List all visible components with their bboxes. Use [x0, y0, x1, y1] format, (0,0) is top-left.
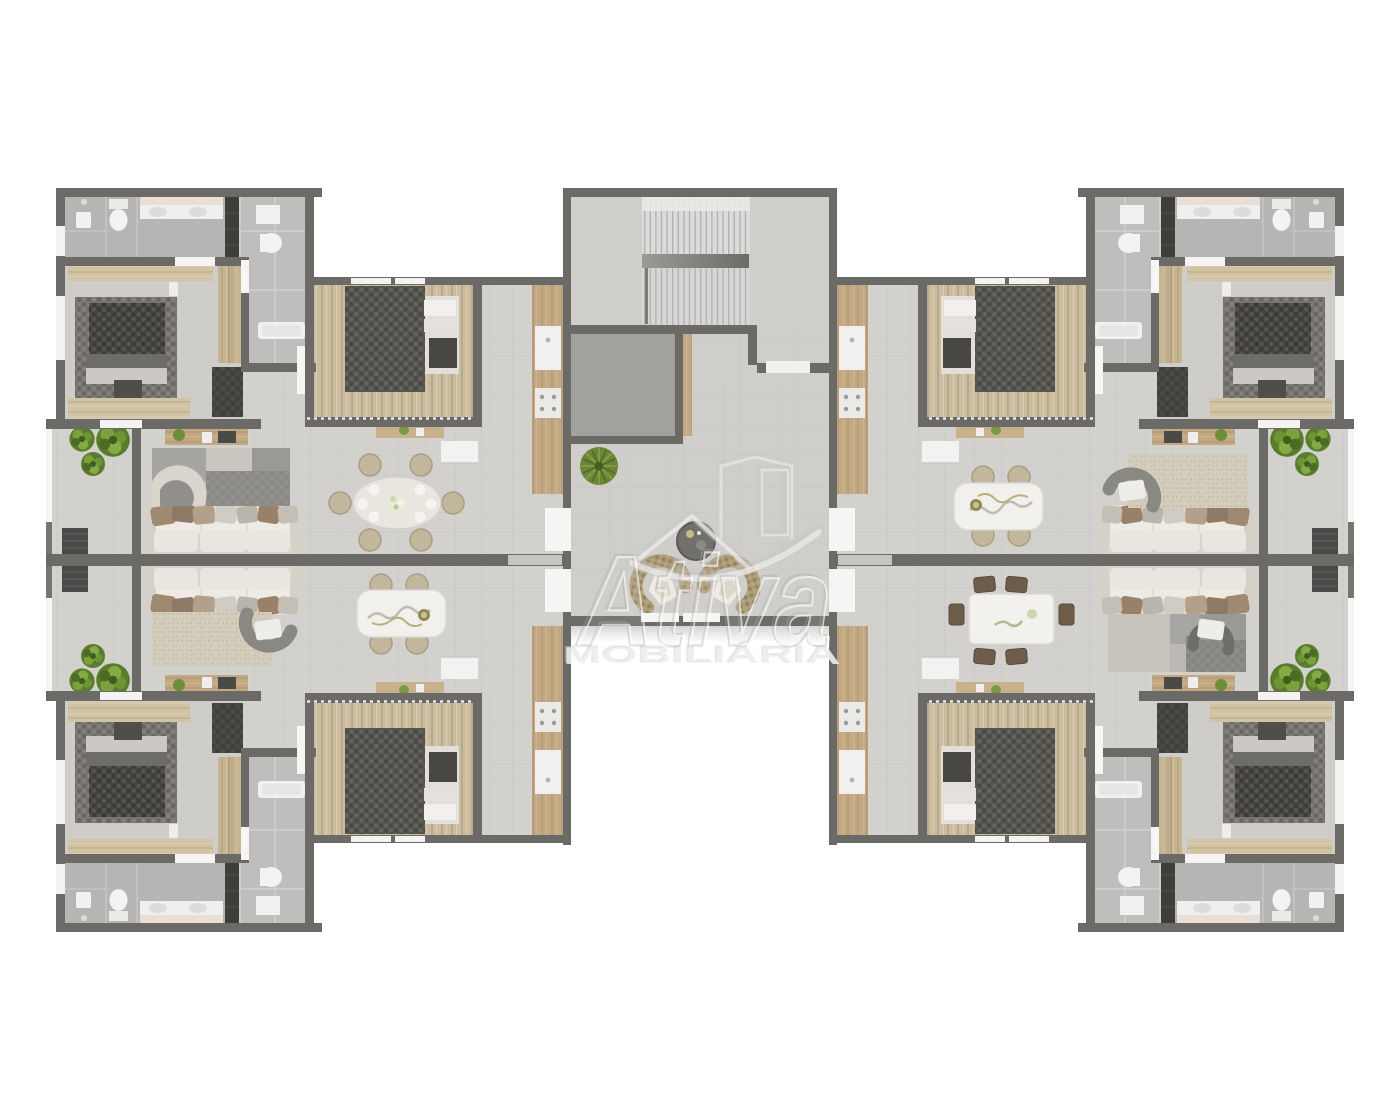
svg-text:MOBILIÁRIA: MOBILIÁRIA: [563, 641, 840, 669]
